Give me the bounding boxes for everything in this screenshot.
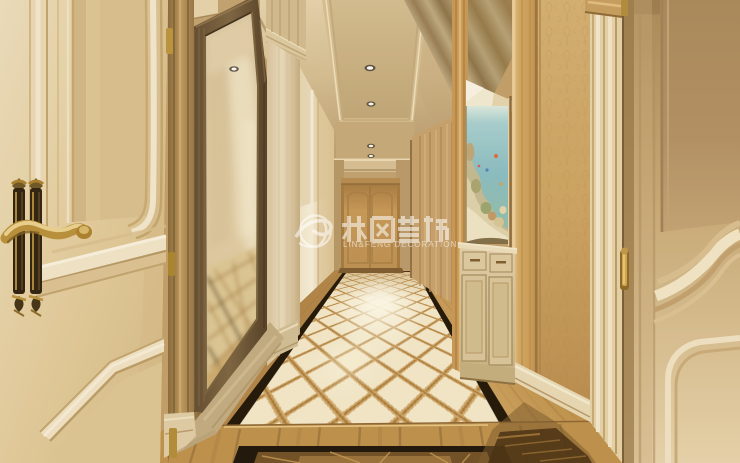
svg-text:LIN&FENG DECORATION: LIN&FENG DECORATION bbox=[343, 240, 457, 249]
